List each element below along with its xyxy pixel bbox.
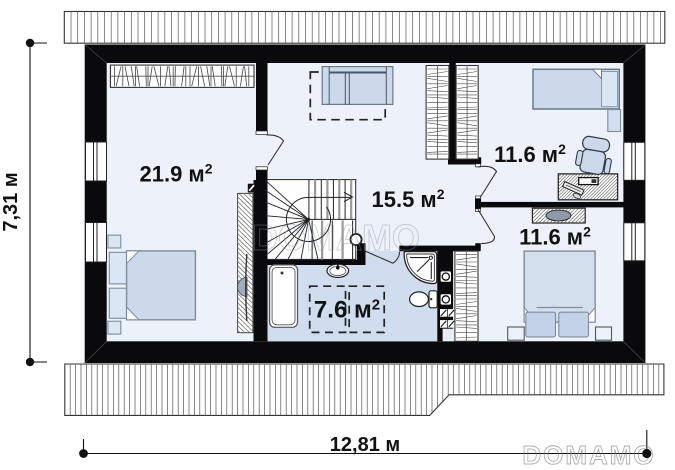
svg-text:7.6 м2: 7.6 м2 — [314, 297, 380, 324]
svg-text:7,31 м: 7,31 м — [0, 172, 22, 231]
svg-text:DOMAMO: DOMAMO — [522, 440, 655, 470]
svg-text:DOMAMO: DOMAMO — [252, 217, 420, 258]
svg-text:11.6 м2: 11.6 м2 — [494, 141, 566, 167]
svg-text:12,81 м: 12,81 м — [330, 434, 400, 456]
svg-text:21.9 м2: 21.9 м2 — [139, 161, 212, 187]
svg-text:11.6 м2: 11.6 м2 — [519, 224, 591, 250]
svg-text:15.5 м2: 15.5 м2 — [371, 186, 444, 212]
